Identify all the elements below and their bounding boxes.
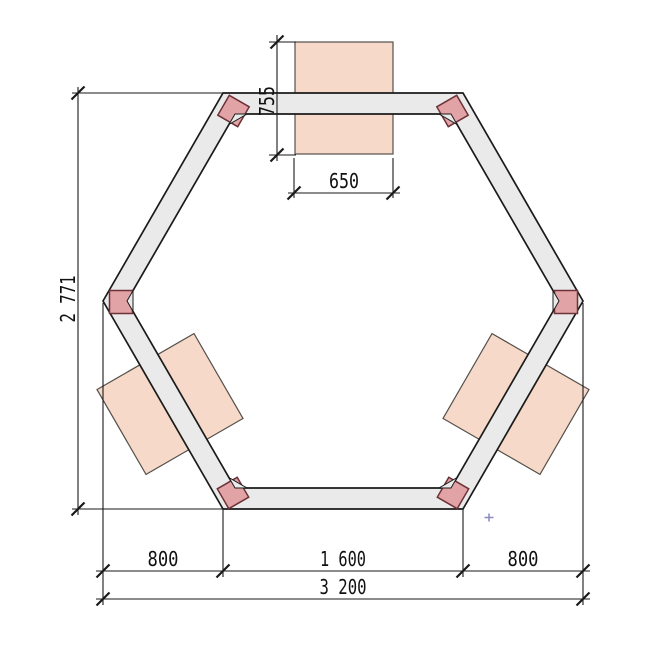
dim-bench-depth-label: 755 xyxy=(255,86,279,116)
dim-bottom-middle-label: 1 600 xyxy=(320,547,366,571)
dim-bottom-total-label: 3 200 xyxy=(320,575,367,599)
dim-bench-width-label: 650 xyxy=(329,169,359,193)
dim-bottom-right-label: 800 xyxy=(508,547,539,571)
dim-bottom-left-label: 800 xyxy=(148,547,179,571)
drawing-canvas[interactable]: 2 771 755 650 800 1 600 800 3 200 xyxy=(0,0,670,648)
dim-height-label: 2 771 xyxy=(56,276,80,323)
dim-bench-width: 650 xyxy=(288,158,401,200)
plan-drawing: 2 771 755 650 800 1 600 800 3 200 xyxy=(0,0,670,648)
crosshair-cursor-icon xyxy=(485,514,494,522)
